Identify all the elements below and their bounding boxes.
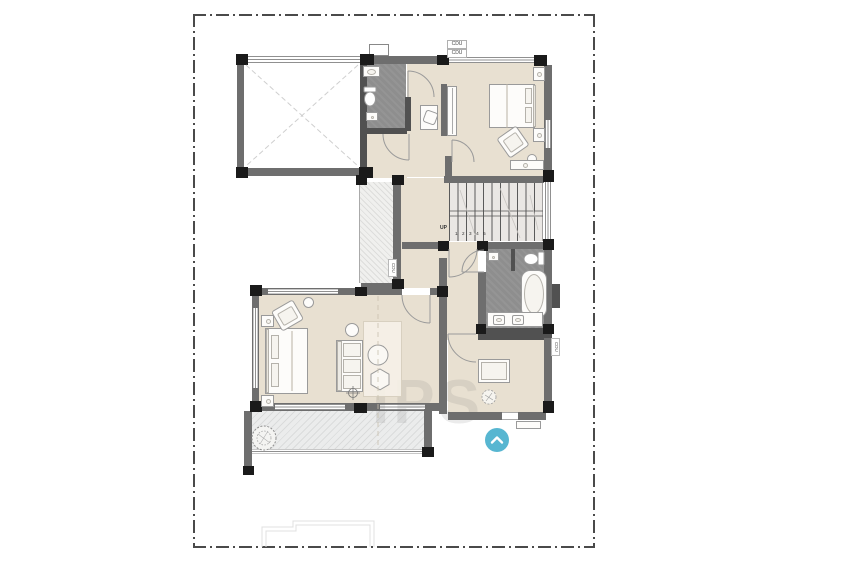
boundary-bottom <box>193 546 595 548</box>
stair-step-numbers: 1 2 3 4 5 <box>455 232 487 237</box>
bed-headboard <box>266 329 269 393</box>
boundary-left <box>193 14 195 548</box>
island-top <box>481 362 507 380</box>
sofa-cushion <box>343 343 361 357</box>
column <box>236 54 248 65</box>
column <box>243 466 254 475</box>
window-stairs <box>545 181 551 239</box>
nightstand <box>261 395 274 407</box>
side-table <box>303 297 314 308</box>
wall-segment <box>544 65 552 171</box>
balcony-railing <box>252 449 426 454</box>
wall-segment <box>488 242 543 249</box>
lamp <box>266 319 271 324</box>
bed-pillow <box>271 335 279 359</box>
cdu-text: CDU <box>390 263 395 273</box>
bed-headboard <box>533 85 536 127</box>
column <box>543 170 554 182</box>
window-master-bottom-1 <box>275 404 345 410</box>
column <box>392 279 404 289</box>
armchair-seat <box>277 306 299 327</box>
ground-floor-ghost-outline <box>262 521 374 547</box>
exterior-step <box>516 421 541 429</box>
up-label: UP <box>440 226 447 231</box>
column <box>392 175 404 185</box>
wall-segment <box>518 412 546 420</box>
nightstand <box>533 128 545 142</box>
small-fixture <box>488 252 499 261</box>
armchair-seat <box>502 132 524 153</box>
sofa-cushion <box>343 359 361 373</box>
sofa <box>336 340 363 392</box>
sink-fixture <box>363 66 380 77</box>
column <box>534 55 547 66</box>
dressing-door-floor <box>448 330 478 340</box>
window-master-left <box>253 308 258 388</box>
column <box>438 241 449 251</box>
cdu-text: CDU <box>452 42 463 47</box>
wardrobe-line <box>452 88 453 134</box>
column <box>355 287 367 296</box>
wall-segment <box>445 156 452 178</box>
column <box>354 403 367 413</box>
wall-segment <box>366 128 407 134</box>
rug <box>363 321 402 397</box>
column <box>236 167 248 178</box>
bed-bedroom-top <box>489 84 535 128</box>
sofa-cushion <box>343 375 361 389</box>
wall-segment <box>478 328 552 340</box>
small-fixture <box>366 112 378 121</box>
balcony-door-gap <box>502 412 518 420</box>
chevron-up-icon <box>485 428 509 452</box>
nightstand <box>533 67 545 81</box>
column <box>360 54 374 65</box>
wall-segment <box>373 56 439 64</box>
wardrobe <box>447 86 457 136</box>
wall-segment <box>402 242 438 249</box>
bed-master <box>265 328 308 394</box>
wall-segment <box>237 64 244 168</box>
window-master-top <box>268 289 338 294</box>
bed-pillow <box>525 107 532 123</box>
column <box>477 241 488 251</box>
column <box>422 447 434 457</box>
boundary-right <box>593 14 595 548</box>
closet-island <box>478 359 510 383</box>
column <box>543 401 554 413</box>
column <box>250 285 262 296</box>
sink-basin <box>515 318 521 322</box>
bathtub <box>521 270 547 318</box>
cdu-label-top-2: CDU <box>447 49 467 58</box>
bed-pillow <box>525 88 532 104</box>
wall-segment <box>405 97 411 131</box>
cdu-label-shaft: CDU <box>388 259 397 277</box>
wall-segment <box>244 411 252 469</box>
terrace-railing-top <box>248 56 361 63</box>
floor-plan-canvas: IPS <box>0 0 850 567</box>
wall-segment <box>444 176 544 183</box>
vanity-sink <box>512 315 524 325</box>
wall-segment <box>511 249 515 271</box>
vanity-sink <box>493 315 505 325</box>
cdu-label-right: CDU <box>551 338 560 356</box>
column <box>437 286 448 297</box>
fixture-dot <box>371 116 374 119</box>
nightstand <box>261 315 274 327</box>
lamp <box>537 72 542 77</box>
sink-basin <box>496 318 502 322</box>
sofa-back <box>337 341 342 391</box>
fixture-dot <box>492 256 495 259</box>
lamp <box>266 399 271 404</box>
column <box>543 239 554 250</box>
column <box>543 324 554 334</box>
exterior-ledge-box <box>552 284 560 308</box>
column <box>356 175 367 185</box>
console-decor <box>523 163 528 168</box>
column <box>476 324 486 334</box>
lamp <box>537 133 542 138</box>
logo-badge <box>485 428 509 452</box>
hall-floor-2 <box>447 249 478 340</box>
door-gap-stairs <box>449 242 478 249</box>
cdu-label-top-1: CDU <box>447 40 467 49</box>
sink-basin <box>367 69 376 75</box>
cdu-text: CDU <box>452 51 463 56</box>
bathtub-basin <box>524 274 544 314</box>
wall-segment <box>248 168 360 176</box>
void-terrace <box>244 63 360 167</box>
boundary-top <box>193 14 595 16</box>
cdu-text: CDU <box>553 342 558 352</box>
window-right-1 <box>545 120 551 148</box>
bed-pillow <box>271 363 279 387</box>
console-table <box>510 160 544 170</box>
wall-segment <box>478 272 486 328</box>
coffee-table <box>345 323 359 337</box>
